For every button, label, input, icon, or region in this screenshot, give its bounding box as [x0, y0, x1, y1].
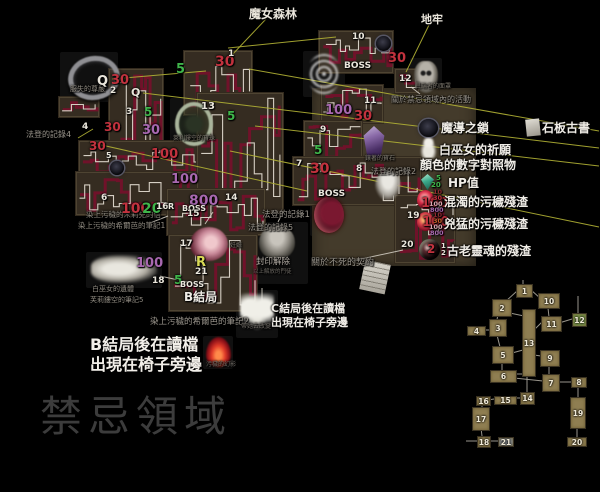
minimap-node-11: 11	[541, 316, 562, 332]
forbidden-area-map: 禁忌領域 魔女森林地牢服失的尊嚴法登的記錄4染上污穢的米莉兒的信染上污穢的希爾芭…	[0, 0, 600, 492]
note-5-label: 芙莉鏤空的筆記5	[90, 297, 143, 304]
map-number: 11	[364, 97, 377, 106]
map-number: 100	[151, 148, 178, 161]
heretic-mask-label: 異端者的面罩	[415, 84, 451, 90]
minimap-node-20: 20	[567, 437, 587, 447]
map-number: 10	[352, 33, 365, 42]
map-number: 5	[314, 144, 322, 156]
seal-sub-label: 以上解放的門徒	[253, 270, 292, 276]
map-number: 100	[325, 104, 352, 117]
legend-fierce-label: 兇猛的污穢殘渣	[444, 218, 528, 230]
tablet-icon	[525, 118, 541, 136]
map-number: 6	[101, 194, 107, 203]
dungeon-label: 地牢	[421, 14, 443, 25]
hilba-note-2-label: 染上污穢的希爾芭的筆記2	[150, 318, 249, 327]
minimap-node-13: 13	[522, 309, 536, 377]
map-number: 9	[320, 126, 326, 135]
map-number: 30	[310, 162, 329, 176]
minimap-node-18: 18	[477, 436, 491, 448]
record-1-label: 法登的記錄1	[262, 211, 310, 220]
map-number: 16	[156, 203, 169, 212]
minimap-node-14: 14	[520, 392, 535, 405]
ending-b-line2: 出現在椅子旁邊	[90, 357, 202, 373]
ending-c-line1: C結局後在讀檔	[271, 303, 345, 314]
legend-soul-label: 古老靈魂的殘渣	[447, 245, 531, 257]
legend-murky-label: 混濁的污穢殘渣	[444, 196, 528, 208]
map-number: 8	[356, 165, 362, 174]
minimap-node-4: 4	[467, 326, 486, 336]
hilba-note-1-label: 染上污穢的希爾芭的筆記1	[78, 222, 165, 230]
map-number: 2	[441, 250, 446, 257]
map-number: R	[168, 203, 174, 211]
map-number: 18	[152, 277, 165, 286]
map-number: 19	[407, 212, 420, 221]
map-number: 5	[176, 63, 185, 76]
dark-circle-icon	[419, 119, 438, 137]
map-number: 5	[106, 152, 112, 160]
map-number: 30	[89, 140, 106, 152]
map-number: 13	[201, 102, 215, 112]
fetus-label: 妊娠	[230, 243, 242, 249]
map-number: 100	[171, 173, 198, 186]
moon-icon	[314, 197, 344, 233]
minimap-node-19: 19	[570, 397, 586, 429]
map-number: 2	[427, 243, 435, 255]
legend-hp-label: HP值	[448, 177, 479, 189]
dark-circle-icon	[376, 36, 391, 51]
ending-c-line2: 出現在椅子旁邊	[271, 317, 348, 328]
map-number: 12	[399, 75, 412, 84]
minimap-node-17: 17	[472, 407, 490, 431]
legend-witch-label: 白巫女的祈願	[439, 144, 511, 156]
minimap-node-15: 15	[494, 396, 517, 405]
map-number: 30	[388, 52, 406, 65]
map-number: 20	[401, 241, 414, 250]
minimap-node-16: 16	[476, 396, 491, 406]
map-number: 5	[144, 106, 152, 118]
legend-tablet-label: 石板古書	[542, 122, 590, 134]
minimap-node-3: 3	[489, 319, 507, 337]
minimap-node-9: 9	[540, 350, 560, 367]
witch-corpse-label: 白巫女的遺體	[92, 286, 134, 293]
legend-lock-label: 魔導之鎖	[441, 122, 489, 134]
minimap-node-10: 10	[538, 293, 560, 309]
map-number: 800	[430, 230, 444, 237]
swirl-icon	[307, 54, 341, 94]
map-number: 5	[227, 110, 235, 122]
ending-b-marker: B結局	[184, 291, 217, 303]
witch-forest-label: 魔女森林	[249, 8, 297, 20]
minimap-node-5: 5	[492, 346, 514, 364]
record-5-label: 法登的記錄5	[248, 224, 293, 232]
ring-2-label: 萊利鏤空的寶珠	[173, 136, 215, 142]
minimap-node-6: 6	[490, 370, 517, 383]
minimap-node-21: 21	[498, 437, 514, 447]
map-number: 17	[180, 240, 193, 249]
minimap-node-2: 2	[492, 299, 512, 317]
map-number: 4	[82, 123, 88, 132]
map-number: Q	[131, 87, 140, 98]
phantom-label: 污穢的幻影	[206, 362, 236, 368]
map-number: 30	[354, 110, 372, 123]
map-number: Q	[97, 75, 108, 88]
map-number: 15	[187, 210, 200, 219]
minimap-node-12: 12	[572, 313, 587, 327]
dark-circle-icon	[110, 161, 124, 175]
witch-icon	[419, 138, 438, 158]
map-number: R	[196, 256, 206, 269]
map-number: 100	[136, 257, 163, 270]
map-number: 14	[225, 194, 238, 203]
map-number: 2	[110, 87, 116, 96]
map-number: 30	[104, 121, 121, 133]
minimap-node-7: 7	[542, 374, 560, 392]
minimap-node-8: 8	[571, 377, 587, 388]
moth-label: 帶她去改變	[241, 324, 271, 330]
map-number: 7	[296, 160, 302, 169]
map-number: BOSS	[180, 281, 204, 289]
undead-pact-label: 關於不死的契約	[311, 259, 374, 268]
forbidden-activity-label: 關於禁忌領域內的活動	[391, 96, 471, 104]
gem-item-label: 鑲著的寶石	[365, 156, 395, 162]
map-number: BOSS	[344, 62, 371, 71]
minimap-node-1: 1	[516, 284, 533, 298]
legend-color-note: 顏色的數字對照物	[420, 159, 516, 171]
map-number: 30	[142, 124, 160, 137]
map-number: BOSS	[318, 190, 345, 199]
record-4-label: 法登的記錄4	[26, 131, 71, 139]
record-2-label: 法登的記錄2	[371, 168, 416, 176]
seal-release-label: 封印解除	[256, 258, 290, 267]
map-number: 3	[126, 108, 132, 117]
ending-b-line1: B結局後在讀檔	[90, 337, 198, 353]
map-number: 1	[228, 50, 234, 59]
